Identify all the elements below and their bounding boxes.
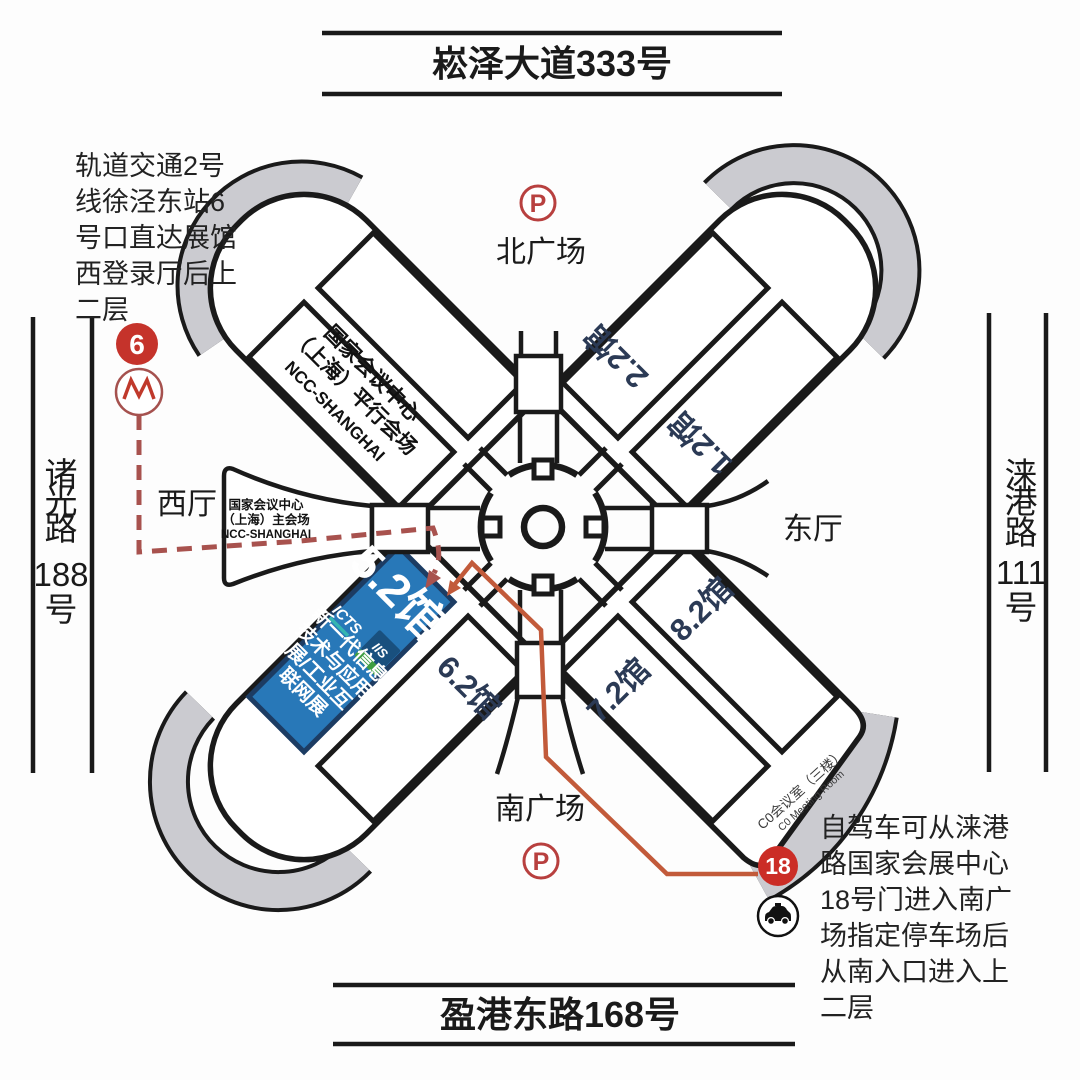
south-road-label: 盈港东路168号: [440, 994, 680, 1035]
parking-letter: P: [530, 190, 547, 218]
drive-note-line: 自驾车可从涞港: [820, 813, 1009, 843]
metro-note-line: 线徐泾东站6: [75, 187, 225, 217]
metro-line-number: 6: [129, 329, 145, 360]
metro-logo-circle: [116, 369, 162, 415]
gate-18-badge: 18: [758, 846, 798, 886]
north-corridor-rect: [516, 356, 561, 412]
map-canvas: 崧泽大道333号 盈港东路168号 诸 光 路 188 号 涞 港 路 111 …: [0, 0, 1080, 1080]
west-lobby-label: 西厅: [157, 488, 217, 521]
north-road-label: 崧泽大道333号: [432, 43, 672, 84]
metro-logo-icon: [116, 369, 162, 415]
north-plaza-label: 北广场: [496, 236, 586, 269]
metro-note-line: 轨道交通2号: [75, 151, 225, 181]
west-road-char: 号: [45, 591, 78, 628]
ncc-main-line: 国家会议中心: [228, 497, 304, 512]
car-wheel: [782, 918, 789, 925]
drive-note-line: 场指定停车场后: [820, 921, 1009, 951]
hub-notch-east: [586, 518, 604, 536]
west-road-char: 路: [45, 510, 78, 547]
ncc-main-line: （上海）主会场: [222, 512, 310, 527]
east-lobby-label: 东厅: [783, 513, 843, 546]
east-corridor-rect: [652, 505, 707, 552]
east-road-char: 号: [1005, 589, 1038, 626]
metro-note-line: 号口直达展馆: [75, 223, 237, 253]
parking-badge-south: P: [524, 844, 558, 878]
car-icon: [758, 896, 798, 936]
drive-note: 自驾车可从涞港 路国家会展中心 18号门进入南广 场指定停车场后 从南入口进入上…: [820, 813, 1012, 1023]
car-wheel: [768, 918, 775, 925]
gate-number: 18: [765, 853, 791, 879]
drive-note-line: 路国家会展中心: [820, 849, 1009, 879]
ncc-main-label: 国家会议中心 （上海）主会场 NCC-SHANGHAI: [221, 497, 311, 541]
parking-badge-north: P: [521, 186, 555, 220]
drive-note-line: 二层: [820, 993, 874, 1023]
hub-notch-west: [482, 518, 500, 536]
east-horn-curves: [707, 481, 768, 576]
drive-note-line: 18号门进入南广: [820, 885, 1012, 915]
east-road-number: 111: [996, 554, 1046, 591]
venue-map: 崧泽大道333号 盈港东路168号 诸 光 路 188 号 涞 港 路 111 …: [0, 0, 1080, 1080]
drive-note-line: 从南入口进入上: [820, 957, 1009, 987]
metro-line-badge: 6: [116, 323, 158, 365]
west-road-label: 诸 光 路 188 号: [33, 456, 88, 628]
central-hub: [464, 448, 622, 606]
metro-note-line: 二层: [75, 295, 129, 325]
ncc-main-line: NCC-SHANGHAI: [221, 529, 311, 541]
hub-notch-north: [534, 460, 552, 478]
hub-notch-south: [534, 576, 552, 594]
west-road-number: 188: [33, 556, 88, 593]
east-road-label: 涞 港 路 111 号: [996, 456, 1046, 626]
car-roof-sign: [775, 903, 781, 906]
metro-note-line: 西登录厅后上: [75, 259, 237, 289]
hub-center-circle: [524, 508, 562, 546]
south-plaza-label: 南广场: [495, 793, 585, 826]
east-road-char: 路: [1005, 514, 1038, 551]
parking-letter: P: [533, 848, 550, 876]
